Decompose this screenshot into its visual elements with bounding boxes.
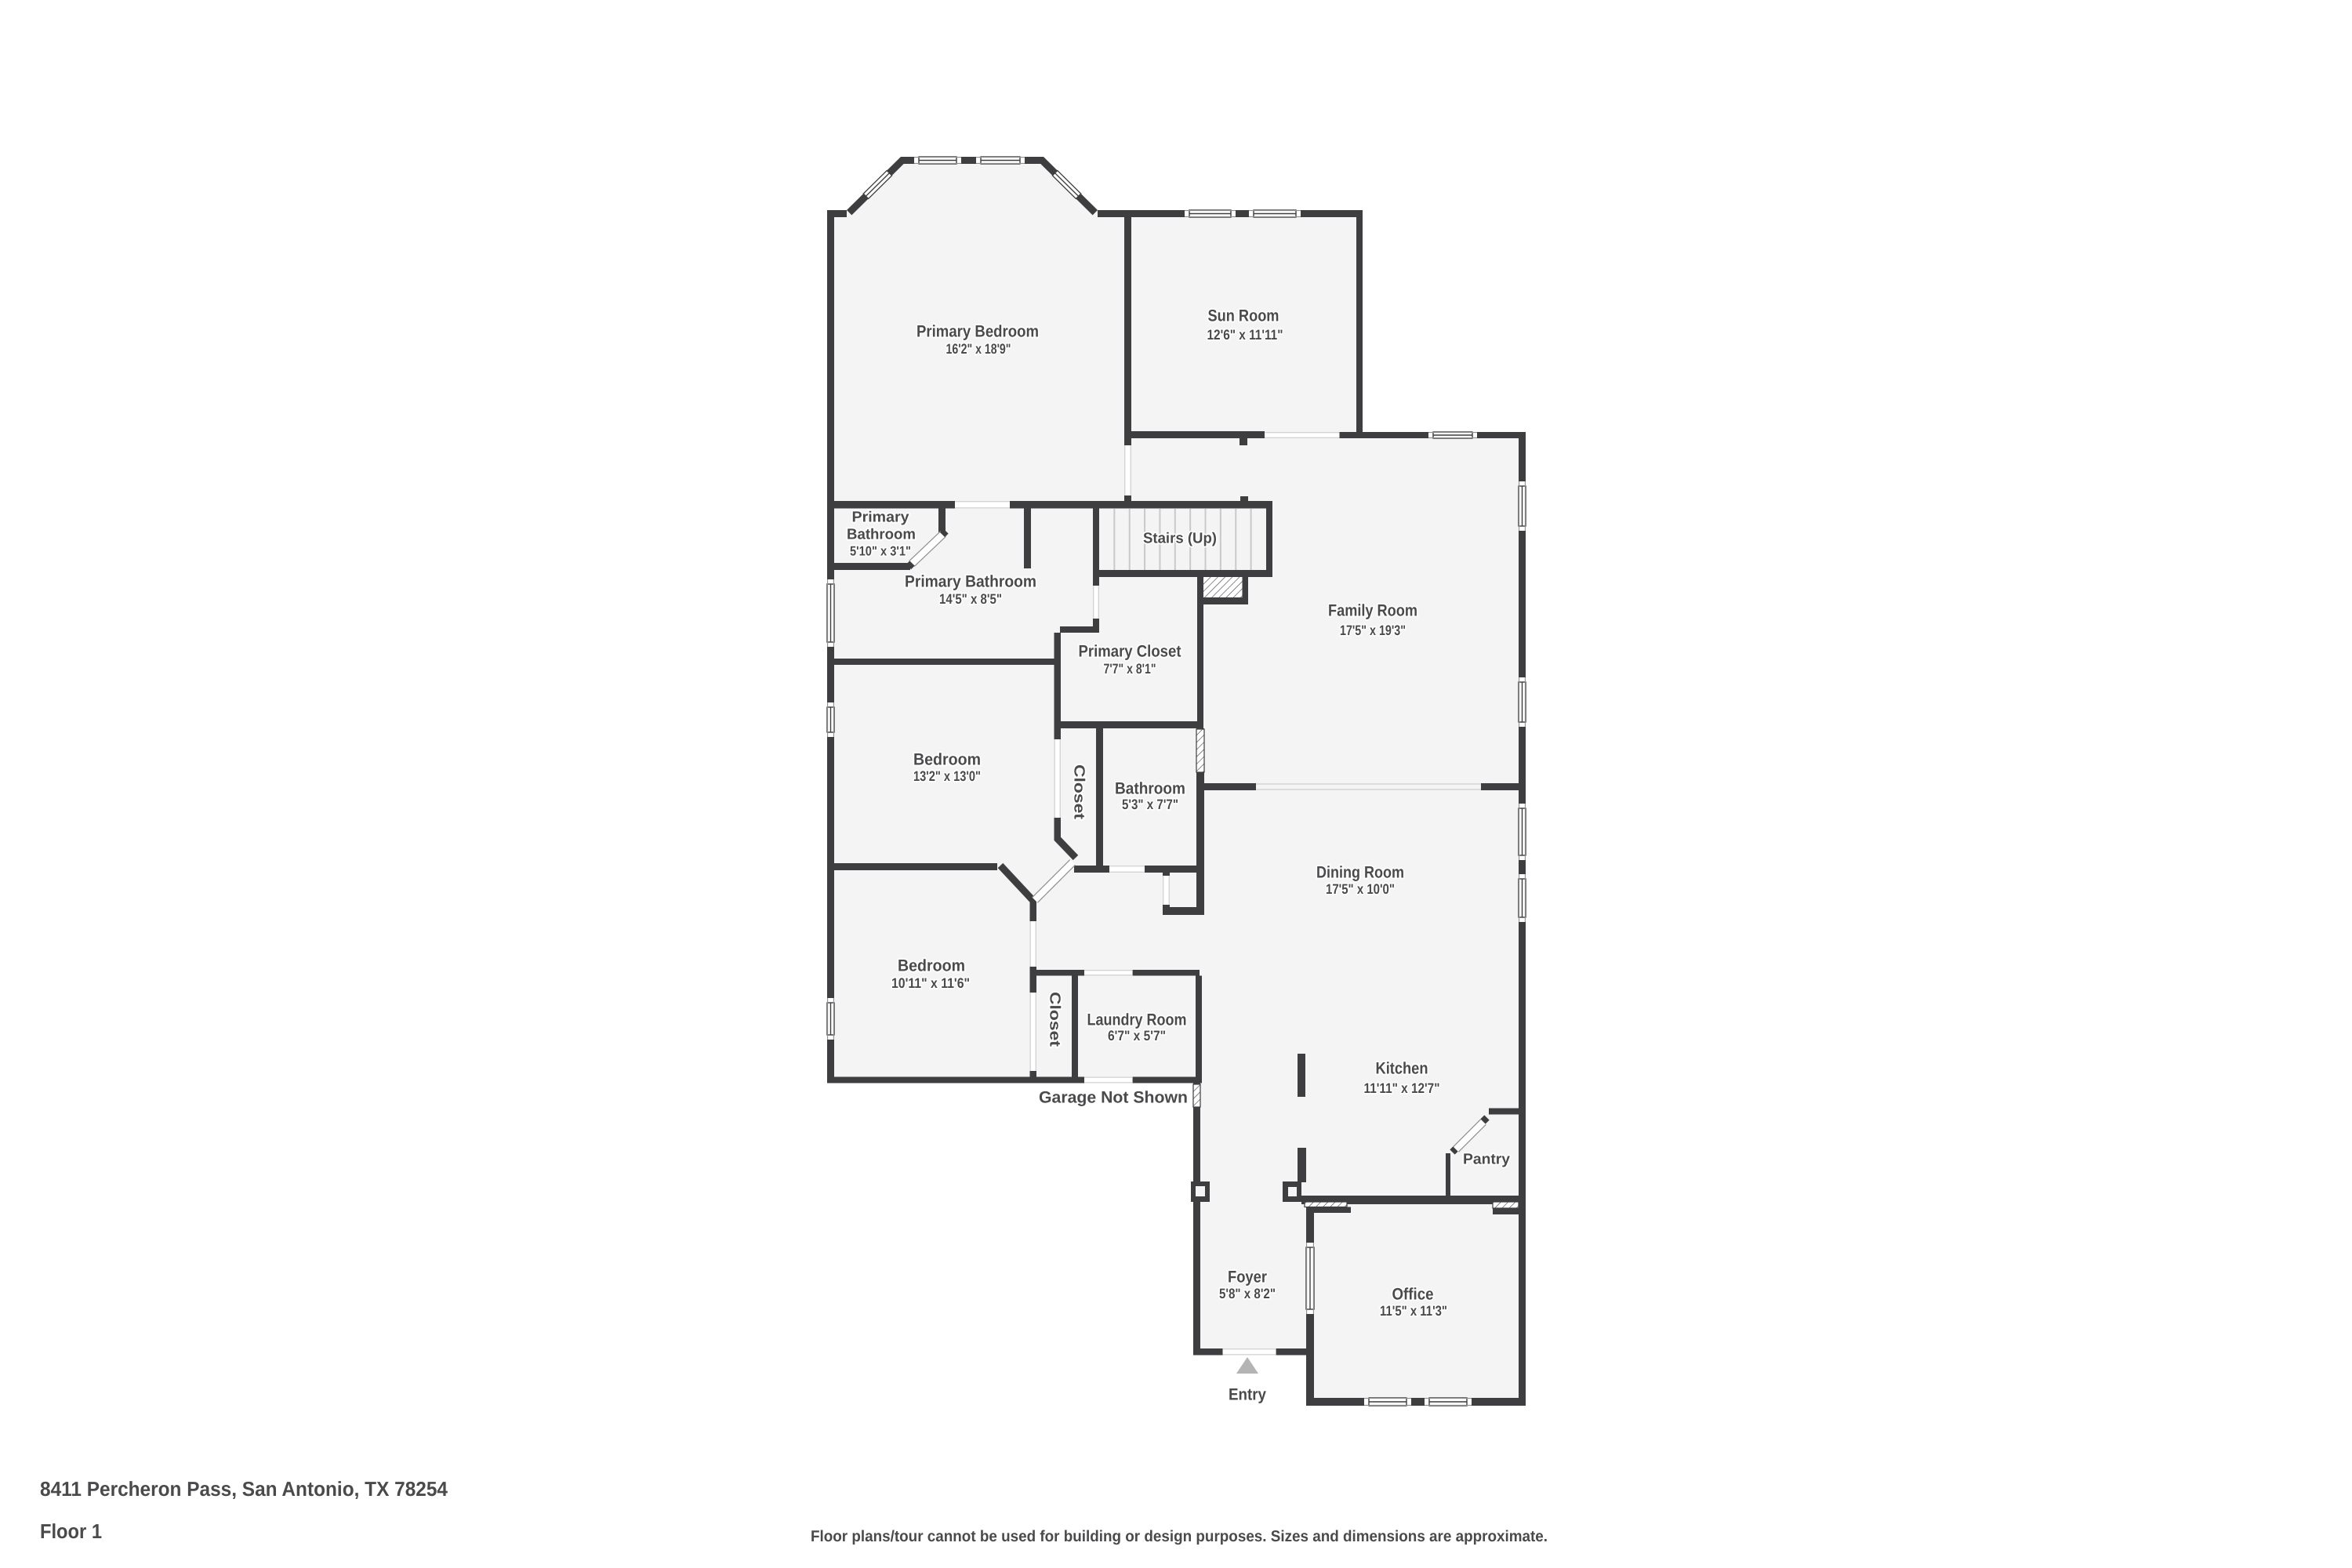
svg-text:Laundry Room: Laundry Room	[1087, 1011, 1187, 1029]
svg-text:Pantry: Pantry	[1463, 1152, 1510, 1168]
svg-text:Floor 1: Floor 1	[40, 1519, 102, 1543]
svg-text:Bedroom: Bedroom	[913, 751, 981, 769]
svg-text:Stairs (Up): Stairs (Up)	[1143, 531, 1217, 547]
svg-text:Primary Closet: Primary Closet	[1079, 643, 1181, 661]
svg-text:13'2" x 13'0": 13'2" x 13'0"	[913, 768, 981, 784]
svg-text:Kitchen: Kitchen	[1376, 1060, 1428, 1078]
svg-text:Bathroom: Bathroom	[1115, 780, 1185, 798]
svg-text:Closet: Closet	[1047, 992, 1063, 1047]
svg-text:Family Room: Family Room	[1328, 602, 1417, 620]
svg-text:8411 Percheron Pass, San Anton: 8411 Percheron Pass, San Antonio, TX 782…	[40, 1477, 448, 1501]
svg-text:Bedroom: Bedroom	[898, 957, 965, 975]
svg-text:Garage Not Shown: Garage Not Shown	[1039, 1089, 1188, 1107]
svg-text:Closet: Closet	[1071, 764, 1087, 820]
svg-text:17'5" x 10'0": 17'5" x 10'0"	[1326, 881, 1395, 897]
svg-text:Primary Bedroom: Primary Bedroom	[916, 323, 1039, 341]
svg-text:6'7" x 5'7": 6'7" x 5'7"	[1108, 1028, 1166, 1044]
svg-text:Bathroom: Bathroom	[847, 527, 916, 543]
svg-text:12'6" x 11'11": 12'6" x 11'11"	[1207, 327, 1283, 343]
svg-text:Foyer: Foyer	[1228, 1269, 1267, 1287]
svg-text:11'11" x 12'7": 11'11" x 12'7"	[1364, 1080, 1440, 1096]
svg-text:Entry: Entry	[1229, 1386, 1266, 1404]
svg-text:17'5" x 19'3": 17'5" x 19'3"	[1340, 622, 1406, 638]
svg-text:11'5" x 11'3": 11'5" x 11'3"	[1380, 1303, 1447, 1319]
svg-text:Primary Bathroom: Primary Bathroom	[905, 573, 1036, 591]
svg-text:Office: Office	[1392, 1286, 1434, 1304]
svg-text:Sun Room: Sun Room	[1208, 307, 1279, 325]
svg-text:Dining Room: Dining Room	[1316, 864, 1404, 882]
svg-text:10'11" x 11'6": 10'11" x 11'6"	[891, 975, 970, 991]
svg-text:Primary: Primary	[852, 510, 909, 526]
svg-text:5'8" x 8'2": 5'8" x 8'2"	[1219, 1286, 1276, 1301]
svg-text:16'2" x 18'9": 16'2" x 18'9"	[946, 341, 1011, 357]
svg-text:Floor plans/tour cannot be use: Floor plans/tour cannot be used for buil…	[811, 1528, 1548, 1545]
svg-text:5'3" x 7'7": 5'3" x 7'7"	[1122, 797, 1178, 812]
svg-text:14'5" x 8'5": 14'5" x 8'5"	[939, 591, 1002, 607]
svg-text:7'7" x 8'1": 7'7" x 8'1"	[1104, 661, 1156, 677]
svg-text:5'10" x 3'1": 5'10" x 3'1"	[850, 544, 911, 559]
